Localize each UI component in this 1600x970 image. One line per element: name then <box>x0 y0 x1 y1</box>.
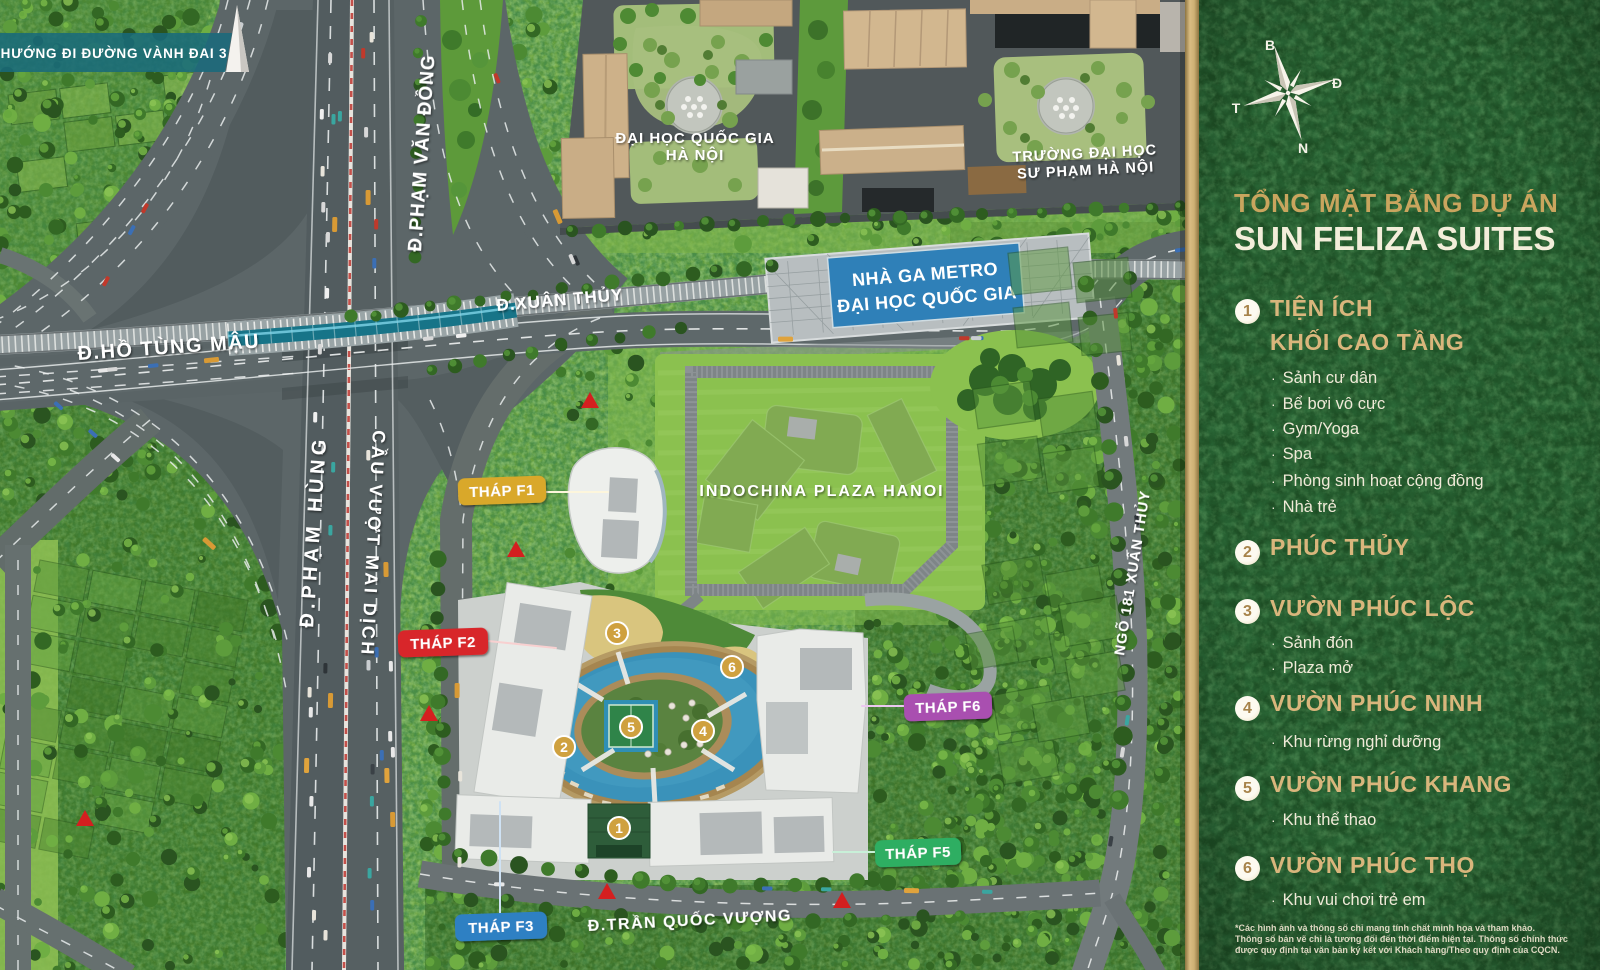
svg-text:INDOCHINA PLAZA HANOI: INDOCHINA PLAZA HANOI <box>699 483 944 500</box>
svg-text:THÁP F2: THÁP F2 <box>410 634 476 653</box>
svg-text:2: 2 <box>560 739 568 755</box>
svg-text:B: B <box>1265 37 1275 53</box>
svg-text:T: T <box>1232 100 1241 116</box>
svg-text:3: 3 <box>613 625 621 641</box>
svg-text:N: N <box>1298 140 1308 156</box>
svg-text:HƯỚNG ĐI ĐƯỜNG VÀNH ĐAI 3: HƯỚNG ĐI ĐƯỜNG VÀNH ĐAI 3 <box>1 46 228 61</box>
svg-text:ĐẠI HỌC QUỐC GIA: ĐẠI HỌC QUỐC GIA <box>615 129 774 147</box>
svg-text:4: 4 <box>699 723 707 739</box>
svg-text:THÁP F5: THÁP F5 <box>885 844 951 863</box>
svg-text:THÁP F6: THÁP F6 <box>915 698 981 717</box>
svg-text:THÁP F3: THÁP F3 <box>468 918 534 937</box>
svg-text:Đ: Đ <box>1332 75 1342 91</box>
svg-text:5: 5 <box>627 719 635 735</box>
svg-text:6: 6 <box>728 659 736 675</box>
svg-text:THÁP F1: THÁP F1 <box>469 482 535 501</box>
svg-text:1: 1 <box>615 820 623 836</box>
svg-text:HÀ NỘI: HÀ NỘI <box>666 146 725 164</box>
